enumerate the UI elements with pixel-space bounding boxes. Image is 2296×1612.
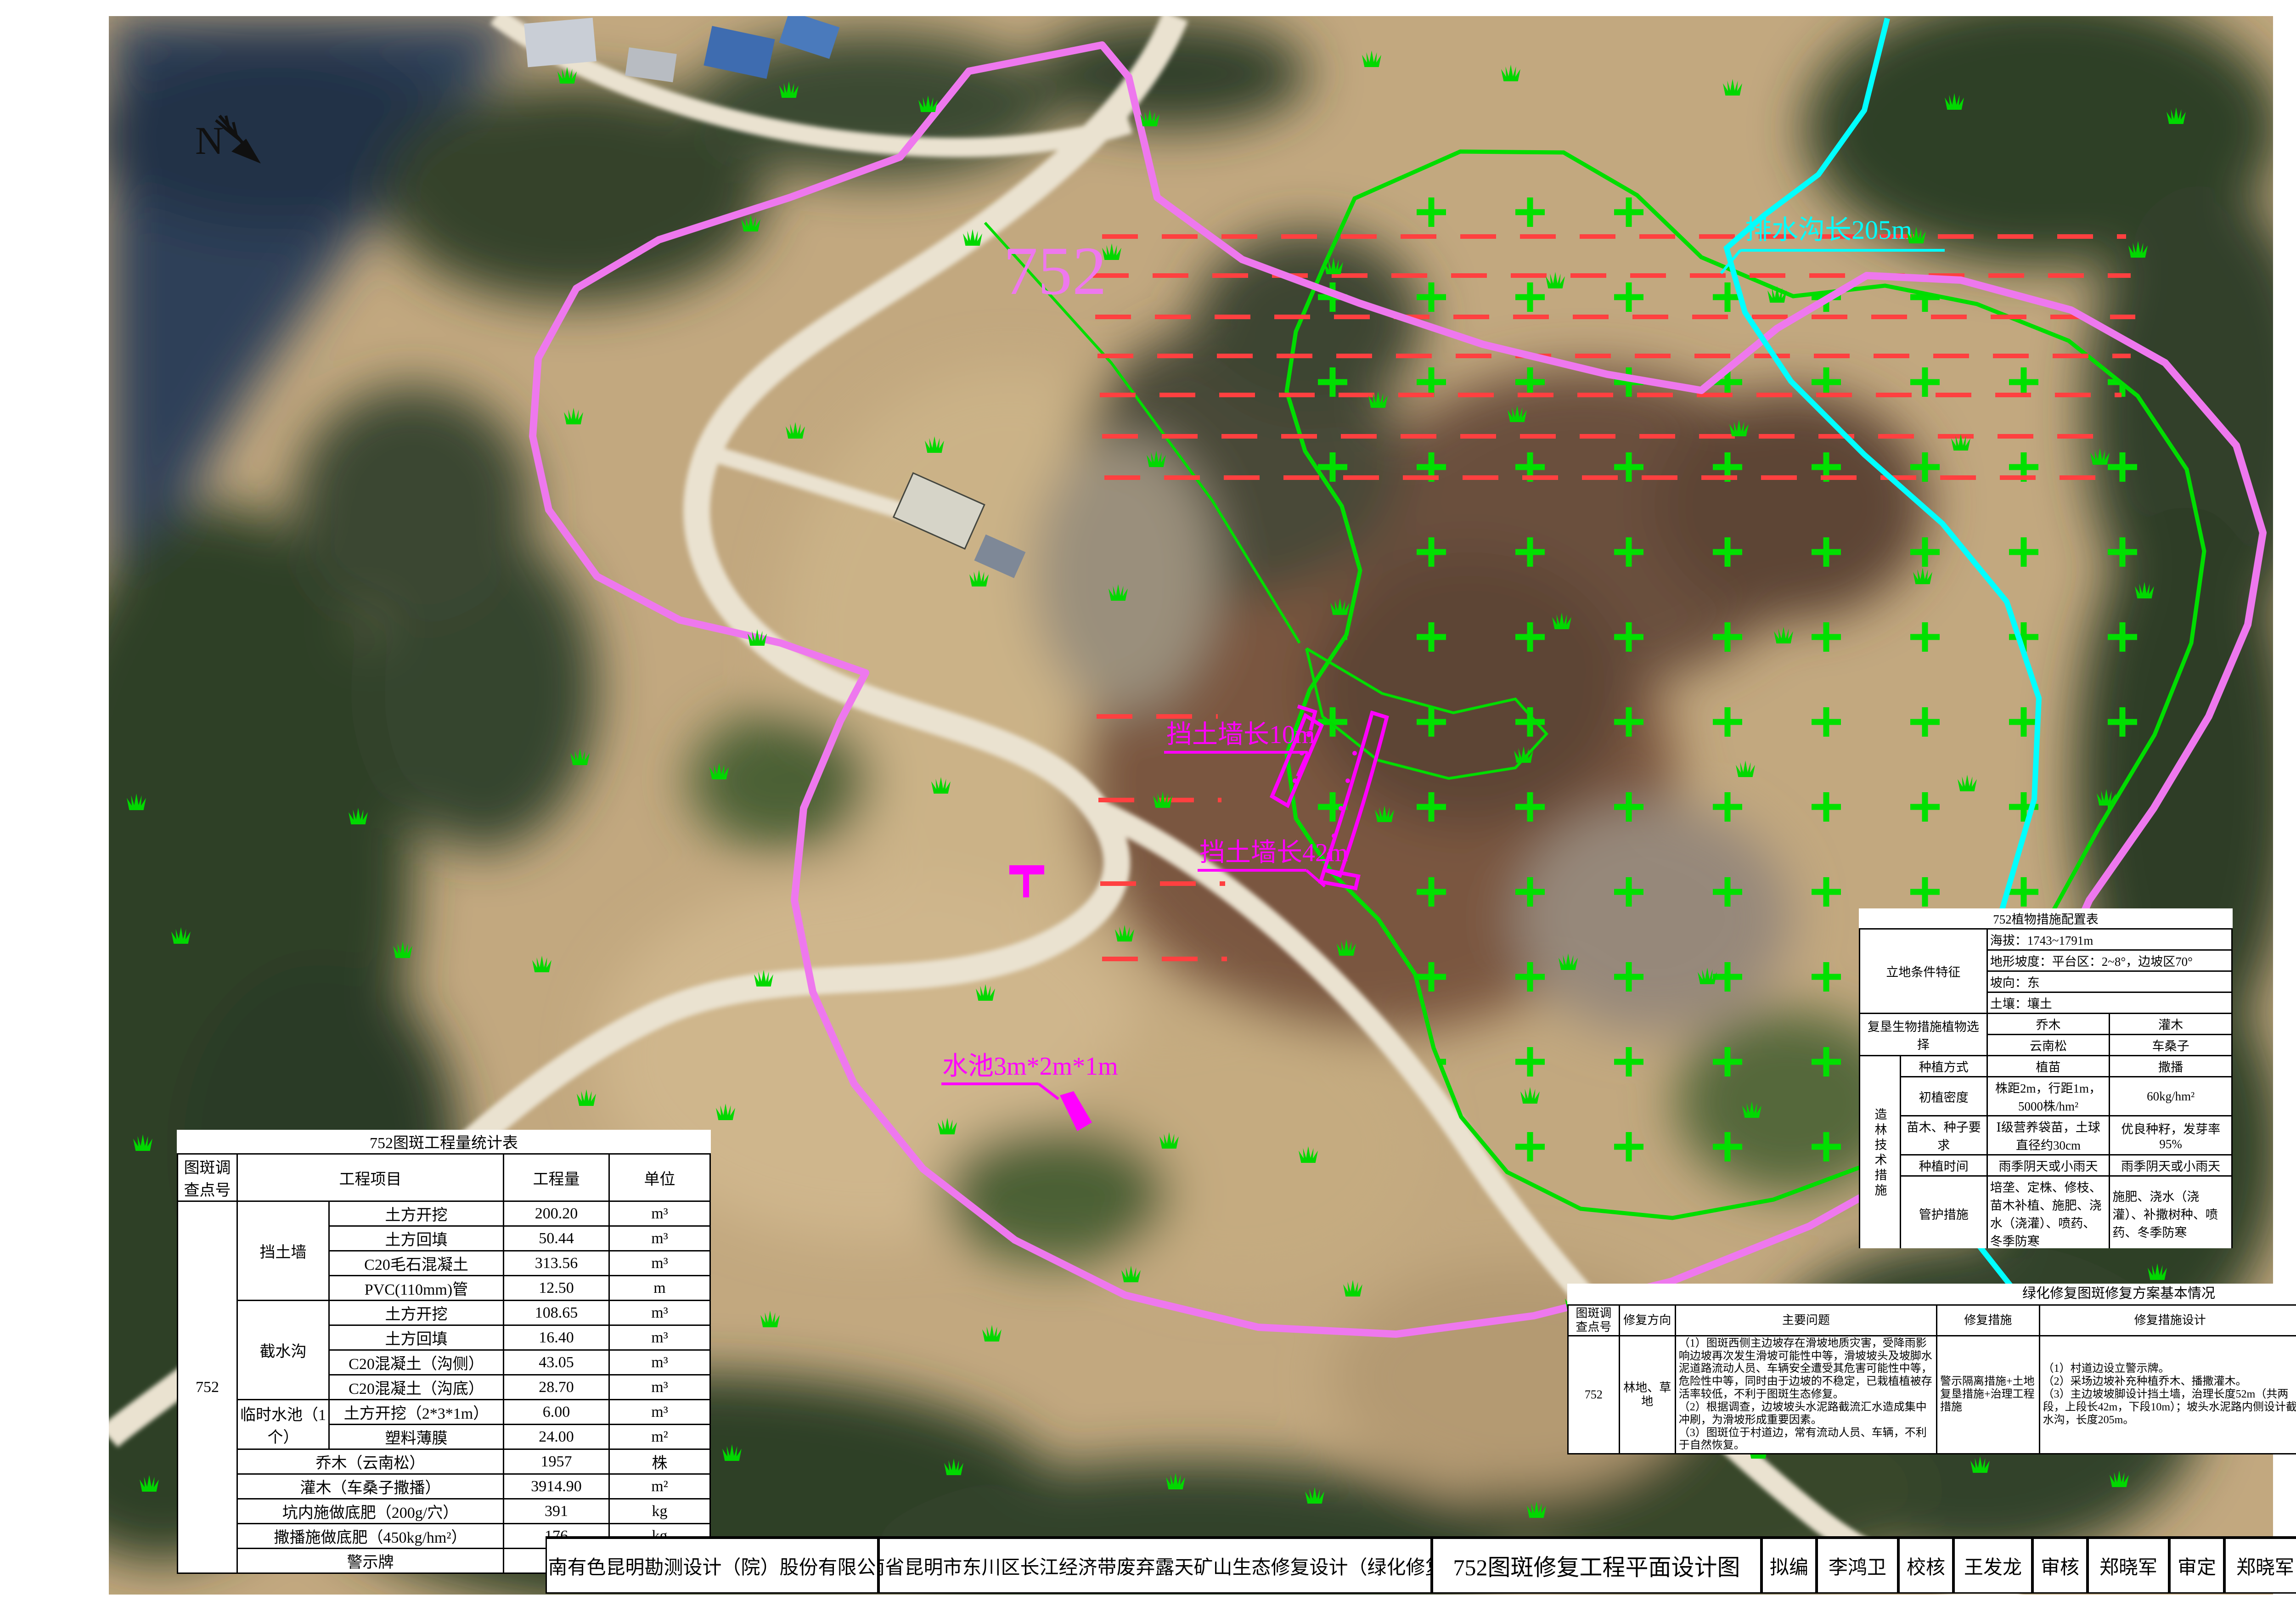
site-row: 坡向：东 [1987, 971, 2232, 992]
col-header-qty: 工程量 [504, 1154, 609, 1201]
title-block-fields: 拟编李鸿卫校核王发龙审核郑晓军审定郑晓军图号02顺序号02日期2020.04 [1761, 1539, 2296, 1594]
work-unit: m³ [609, 1251, 710, 1276]
plan-header: 修复措施 [1937, 1305, 2040, 1336]
work-unit: kg [609, 1499, 710, 1524]
work-unit: m² [609, 1474, 710, 1499]
wall-upper-label: 挡土墙长10m [1166, 721, 1315, 749]
plan-point-id: 752 [1568, 1336, 1620, 1454]
work-unit: m³ [609, 1350, 710, 1375]
work-item: 警示牌 [237, 1549, 504, 1573]
project-name: 云南省昆明市东川区长江经济带废弃露天矿山生态修复设计（绿化修复） [878, 1539, 1432, 1594]
title-field-value: 王发龙 [1953, 1539, 2032, 1594]
plan-table: 绿化修复图斑修复方案基本情况 图斑调查点号 修复方向 主要问题 修复措施 修复措… [1567, 1284, 2296, 1454]
species-shrub: 车桑子 [2110, 1035, 2232, 1056]
selection-label: 复垦生物措施植物选择 [1860, 1014, 1987, 1056]
tech-row-tree: 培垄、定株、修枝、苗木补植、施肥、浇水（浇灌）、喷药、冬季防寒 [1987, 1176, 2110, 1249]
tech-row-label: 种植时间 [1900, 1155, 1987, 1176]
site-label: 立地条件特征 [1860, 929, 1987, 1014]
tech-row-tree: 植苗 [1987, 1056, 2110, 1077]
plan-problems: （1）图斑西侧主边坡存在滑坡地质灾害，受降雨影响边坡再次发生滑坡可能性中等，滑坡… [1675, 1336, 1936, 1454]
work-item: 土方回填 [329, 1226, 504, 1251]
work-item: C20毛石混凝土 [329, 1251, 504, 1276]
work-qty: 43.05 [504, 1350, 609, 1375]
col-header-item: 工程项目 [237, 1154, 504, 1201]
plant-measures-panel: 752植物措施配置表 立地条件特征 海拔：1743~1791m 地形坡度：平台区… [1859, 908, 2233, 1248]
work-unit: m³ [609, 1400, 710, 1425]
patch-number-label: 752 [1003, 233, 1107, 309]
work-unit: m [609, 1276, 710, 1301]
work-qty: 6.00 [504, 1400, 609, 1425]
work-unit: m³ [609, 1301, 710, 1325]
plant-type-tree: 乔木 [1987, 1014, 2110, 1035]
tech-row-shrub: 60kg/hm² [2110, 1077, 2232, 1116]
work-qty: 3914.90 [504, 1474, 609, 1499]
work-item: C20混凝土（沟侧） [329, 1350, 504, 1375]
tech-row-label: 初植密度 [1900, 1077, 1987, 1116]
title-field-label: 拟编 [1761, 1539, 1817, 1594]
plan-header: 图斑调查点号 [1568, 1305, 1620, 1336]
tech-row-shrub: 撒播 [2110, 1056, 2232, 1077]
tech-row-shrub: 优良种籽，发芽率95% [2110, 1116, 2232, 1155]
site-row: 海拔：1743~1791m [1987, 929, 2232, 950]
work-item: 土方开挖 [329, 1201, 504, 1226]
work-item: 灌木（车桑子撒播） [237, 1474, 504, 1499]
plan-direction: 林地、草地 [1619, 1336, 1675, 1454]
tech-label: 造林技术措施 [1860, 1056, 1901, 1249]
tech-row-shrub: 雨季阴天或小雨天 [2110, 1155, 2232, 1176]
work-item: 乔木（云南松） [237, 1449, 504, 1474]
drain-label: 排水沟长205m [1745, 215, 1912, 245]
work-qty: 313.56 [504, 1251, 609, 1276]
title-field-value: 郑晓军 [2088, 1539, 2169, 1594]
work-item: C20混凝土（沟底） [329, 1375, 504, 1400]
title-block: 西南有色昆明勘测设计（院）股份有限公司 云南省昆明市东川区长江经济带废弃露天矿山… [546, 1536, 2296, 1594]
work-unit: 株 [609, 1449, 710, 1474]
col-header-point: 图斑调查点号 [178, 1154, 237, 1201]
work-qty: 16.40 [504, 1325, 609, 1350]
work-item: 塑料薄膜 [329, 1425, 504, 1449]
plan-header: 主要问题 [1675, 1305, 1936, 1336]
work-item: 土方开挖 [329, 1301, 504, 1325]
work-item: PVC(110mm)管 [329, 1276, 504, 1301]
work-item: 坑内施做底肥（200g/穴） [237, 1499, 504, 1524]
quantity-table-title: 752图斑工程量统计表 [178, 1130, 710, 1154]
work-unit: m² [609, 1425, 710, 1449]
species-tree: 云南松 [1987, 1035, 2110, 1056]
wall-lower-label: 挡土墙长42m [1199, 839, 1348, 867]
tech-row-label: 管护措施 [1900, 1176, 1987, 1249]
plant-measures-table: 752植物措施配置表 立地条件特征 海拔：1743~1791m 地形坡度：平台区… [1859, 908, 2233, 1248]
tech-row-shrub: 施肥、浇水（浇灌）、补撒树种、喷药、冬季防寒 [2110, 1176, 2232, 1249]
tech-row-tree: 株距2m，行距1m，5000株/hm² [1987, 1077, 2110, 1116]
work-unit: m³ [609, 1226, 710, 1251]
quantity-table-panel: 752图斑工程量统计表 图斑调查点号 工程项目 工程量 单位 752挡土墙土方开… [177, 1130, 709, 1574]
plan-header: 修复措施设计 [2039, 1305, 2296, 1336]
work-unit: m³ [609, 1375, 710, 1400]
site-row: 土壤：壤土 [1987, 992, 2232, 1014]
work-qty: 28.70 [504, 1375, 609, 1400]
plan-measures: 警示隔离措施+土地复垦措施+治理工程措施 [1937, 1336, 2040, 1454]
quantity-table: 752图斑工程量统计表 图斑调查点号 工程项目 工程量 单位 752挡土墙土方开… [177, 1130, 711, 1574]
plan-header: 修复方向 [1619, 1305, 1675, 1336]
drawing-sheet: 排水沟长205m 挡土墙长10m 挡土墙长 [0, 0, 2296, 1612]
drawing-title: 752图斑修复工程平面设计图 [1432, 1539, 1761, 1594]
work-qty: 391 [504, 1499, 609, 1524]
plan-design: （1）村道边设立警示牌。 （2）采场边坡补充种植乔木、播撒灌木。 （3）主边坡坡… [2039, 1336, 2296, 1454]
company-name: 西南有色昆明勘测设计（院）股份有限公司 [546, 1539, 878, 1594]
plan-table-title: 绿化修复图斑修复方案基本情况 [1568, 1284, 2296, 1305]
tech-row-tree: Ⅰ级营养袋苗，土球直径约30cm [1987, 1116, 2110, 1155]
plan-table-panel: 绿化修复图斑修复方案基本情况 图斑调查点号 修复方向 主要问题 修复措施 修复措… [1567, 1284, 2296, 1499]
work-qty: 24.00 [504, 1425, 609, 1449]
plant-type-shrub: 灌木 [2110, 1014, 2232, 1035]
title-field-value: 郑晓军 [2224, 1539, 2296, 1594]
work-qty: 12.50 [504, 1276, 609, 1301]
work-unit: m³ [609, 1201, 710, 1226]
title-field-value: 李鸿卫 [1817, 1539, 1898, 1594]
work-item: 撒播施做底肥（450kg/hm²） [237, 1524, 504, 1549]
tech-row-label: 苗木、种子要求 [1900, 1116, 1987, 1155]
work-qty: 200.20 [504, 1201, 609, 1226]
work-qty: 1957 [504, 1449, 609, 1474]
work-group: 挡土墙 [237, 1201, 329, 1301]
site-row: 地形坡度：平台区：2~8°，边坡区70° [1987, 950, 2232, 971]
pool-label: 水池3m*2m*1m [942, 1052, 1118, 1081]
tech-row-label: 种植方式 [1900, 1056, 1987, 1077]
col-header-unit: 单位 [609, 1154, 710, 1201]
plant-table-title: 752植物措施配置表 [1860, 908, 2232, 929]
work-group: 截水沟 [237, 1301, 329, 1400]
tech-row-tree: 雨季阴天或小雨天 [1987, 1155, 2110, 1176]
north-label: N [195, 118, 224, 163]
work-item: 土方开挖（2*3*1m） [329, 1400, 504, 1425]
work-qty: 108.65 [504, 1301, 609, 1325]
work-qty: 50.44 [504, 1226, 609, 1251]
title-field-label: 校核 [1898, 1539, 1953, 1594]
work-unit: m³ [609, 1325, 710, 1350]
work-item: 土方回填 [329, 1325, 504, 1350]
title-field-label: 审定 [2169, 1539, 2224, 1594]
title-field-label: 审核 [2032, 1539, 2088, 1594]
patch-point-id: 752 [178, 1201, 237, 1573]
quantity-table-body: 752图斑工程量统计表 图斑调查点号 工程项目 工程量 单位 752挡土墙土方开… [178, 1130, 710, 1573]
work-group: 临时水池（1个） [237, 1400, 329, 1449]
